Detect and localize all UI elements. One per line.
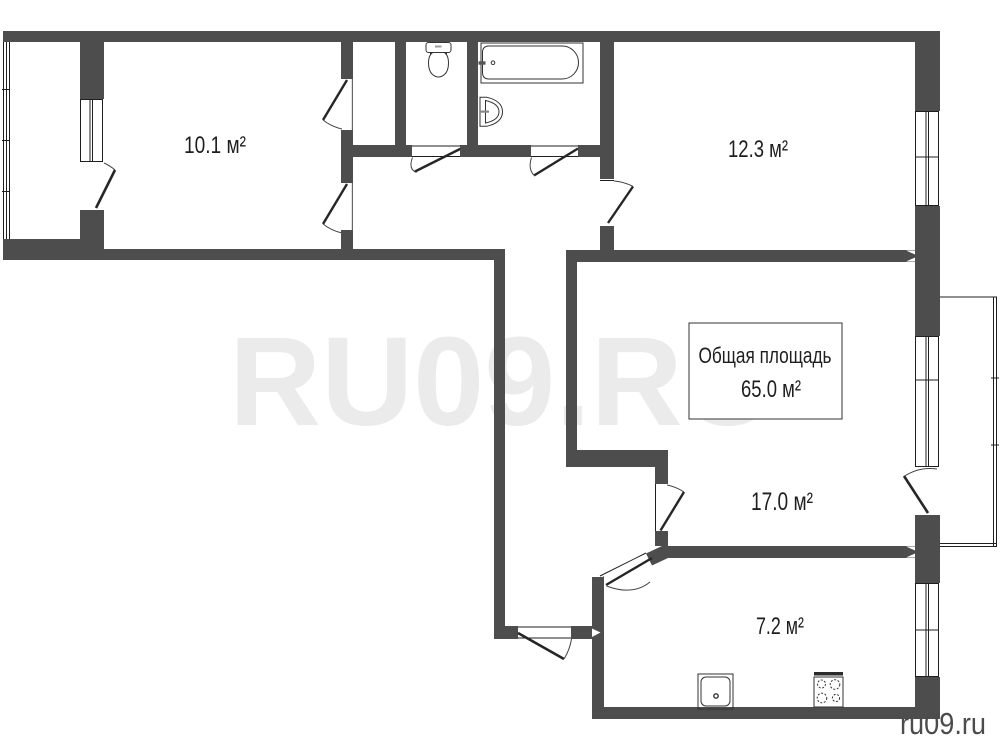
svg-text:65.0 м²: 65.0 м² — [741, 376, 801, 403]
svg-text:12.3 м²: 12.3 м² — [728, 136, 788, 163]
svg-text:7.2 м²: 7.2 м² — [756, 613, 804, 640]
svg-text:Общая площадь: Общая площадь — [699, 343, 832, 368]
svg-text:ru09.ru: ru09.ru — [900, 706, 986, 741]
svg-text:10.1 м²: 10.1 м² — [184, 132, 246, 159]
svg-text:17.0 м²: 17.0 м² — [751, 488, 813, 516]
